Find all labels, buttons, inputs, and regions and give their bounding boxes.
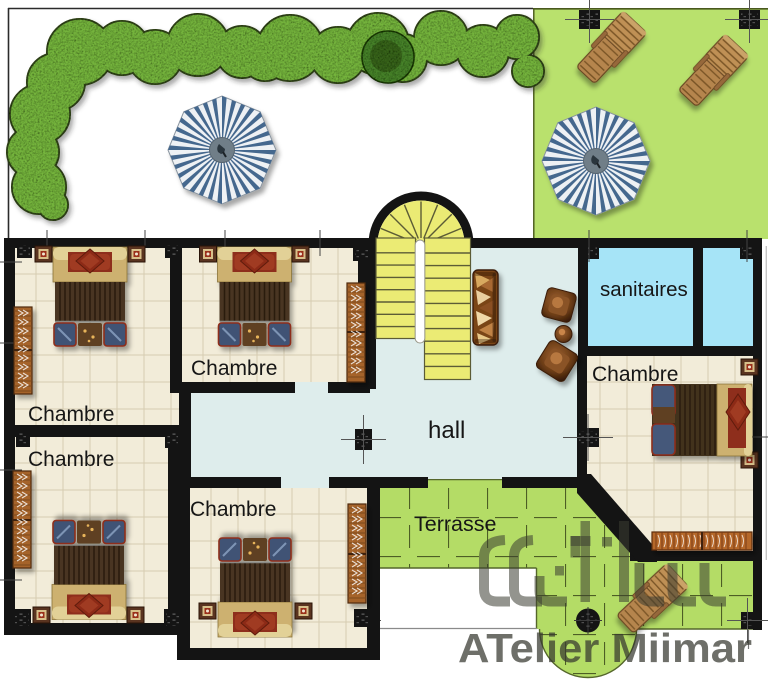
svg-text:hall: hall xyxy=(428,417,465,444)
svg-text:Chambre: Chambre xyxy=(28,403,114,426)
svg-text:Chambre: Chambre xyxy=(190,498,276,521)
svg-text:Terrasse: Terrasse xyxy=(414,512,496,536)
svg-text:Chambre: Chambre xyxy=(592,363,678,386)
svg-text:Chambre: Chambre xyxy=(191,357,277,380)
svg-text:sanitaires: sanitaires xyxy=(600,278,688,301)
svg-text:Chambre: Chambre xyxy=(28,448,114,471)
svg-text:ATelier Miimar: ATelier Miimar xyxy=(458,625,752,671)
